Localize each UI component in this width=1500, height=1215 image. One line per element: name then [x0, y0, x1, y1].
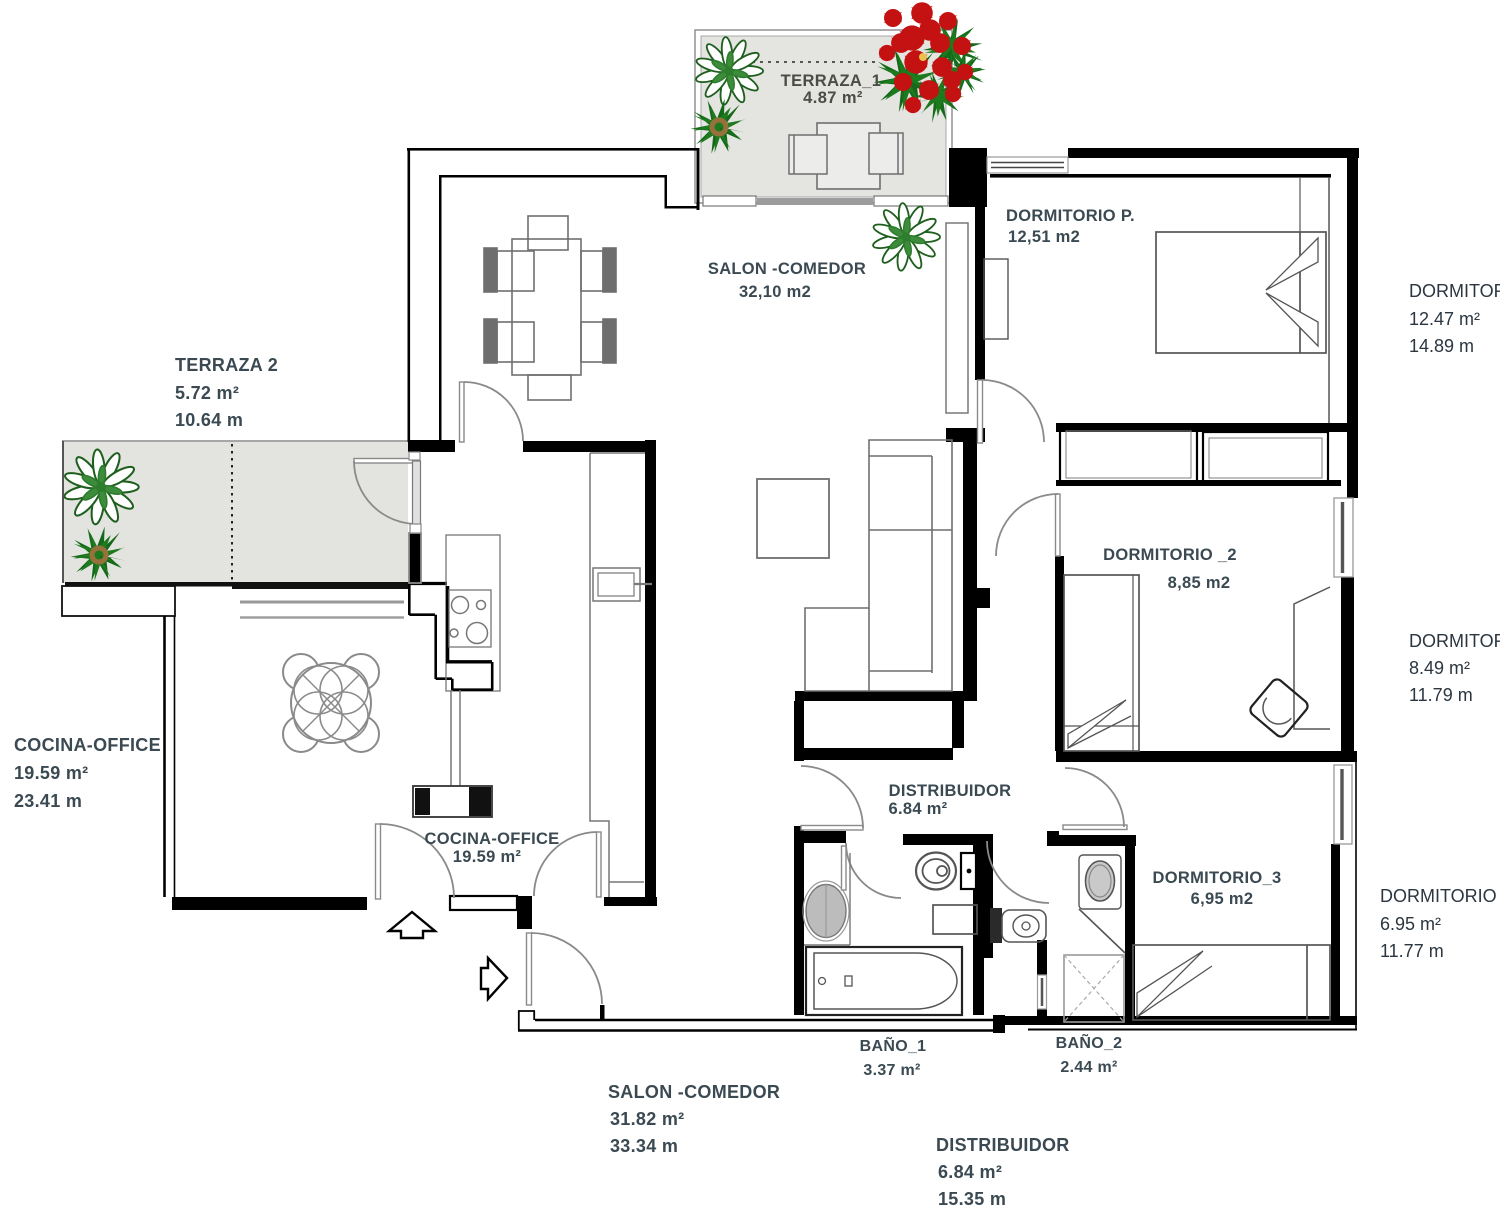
svg-text:11.77 m: 11.77 m — [1380, 941, 1444, 961]
svg-text:BAÑO_1: BAÑO_1 — [860, 1035, 927, 1055]
svg-text:BAÑO_2: BAÑO_2 — [1056, 1032, 1123, 1052]
svg-text:DISTRIBUIDOR: DISTRIBUIDOR — [936, 1135, 1070, 1155]
svg-text:6.84 m²: 6.84 m² — [938, 1162, 1002, 1182]
svg-text:COCINA-OFFICE: COCINA-OFFICE — [425, 830, 560, 848]
svg-text:6.84 m²: 6.84 m² — [889, 800, 948, 818]
svg-text:DORMITORIO: DORMITORIO — [1409, 281, 1500, 301]
svg-text:33.34 m: 33.34 m — [610, 1136, 678, 1156]
svg-text:19.59 m²: 19.59 m² — [14, 763, 88, 783]
svg-text:DORMITORIO: DORMITORIO — [1380, 886, 1497, 906]
svg-text:2.44 m²: 2.44 m² — [1060, 1059, 1117, 1076]
svg-text:SALON -COMEDOR: SALON -COMEDOR — [608, 1082, 780, 1102]
svg-text:12,51 m2: 12,51 m2 — [1008, 228, 1080, 246]
svg-text:23.41 m: 23.41 m — [14, 791, 82, 811]
svg-text:3.37 m²: 3.37 m² — [863, 1062, 920, 1079]
svg-text:DORMITORIO P.: DORMITORIO P. — [1006, 207, 1135, 225]
svg-text:DORMITORIO_3: DORMITORIO_3 — [1153, 869, 1282, 887]
svg-text:14.89 m: 14.89 m — [1409, 336, 1474, 356]
svg-text:12.47 m²: 12.47 m² — [1409, 309, 1480, 329]
svg-text:19.59 m²: 19.59 m² — [453, 848, 522, 866]
svg-text:DORMITORIO: DORMITORIO — [1409, 631, 1500, 651]
svg-text:4.87 m²: 4.87 m² — [803, 89, 863, 107]
svg-text:11.79 m: 11.79 m — [1409, 685, 1473, 705]
svg-text:6.95 m²: 6.95 m² — [1380, 914, 1441, 934]
svg-text:TERRAZA_1: TERRAZA_1 — [781, 72, 882, 90]
svg-text:31.82 m²: 31.82 m² — [610, 1109, 684, 1129]
svg-text:COCINA-OFFICE: COCINA-OFFICE — [14, 735, 161, 755]
svg-text:TERRAZA 2: TERRAZA 2 — [175, 355, 278, 375]
svg-text:15.35 m: 15.35 m — [938, 1189, 1006, 1209]
svg-text:DORMITORIO _2: DORMITORIO _2 — [1103, 546, 1237, 564]
svg-text:8,85 m2: 8,85 m2 — [1168, 574, 1231, 592]
svg-text:SALON -COMEDOR: SALON -COMEDOR — [708, 260, 866, 278]
svg-text:5.72 m²: 5.72 m² — [175, 383, 239, 403]
svg-text:8.49 m²: 8.49 m² — [1409, 658, 1470, 678]
svg-text:6,95 m2: 6,95 m2 — [1191, 890, 1254, 908]
svg-text:32,10 m2: 32,10 m2 — [739, 283, 811, 301]
svg-text:DISTRIBUIDOR: DISTRIBUIDOR — [889, 782, 1012, 800]
svg-text:10.64 m: 10.64 m — [175, 410, 243, 430]
